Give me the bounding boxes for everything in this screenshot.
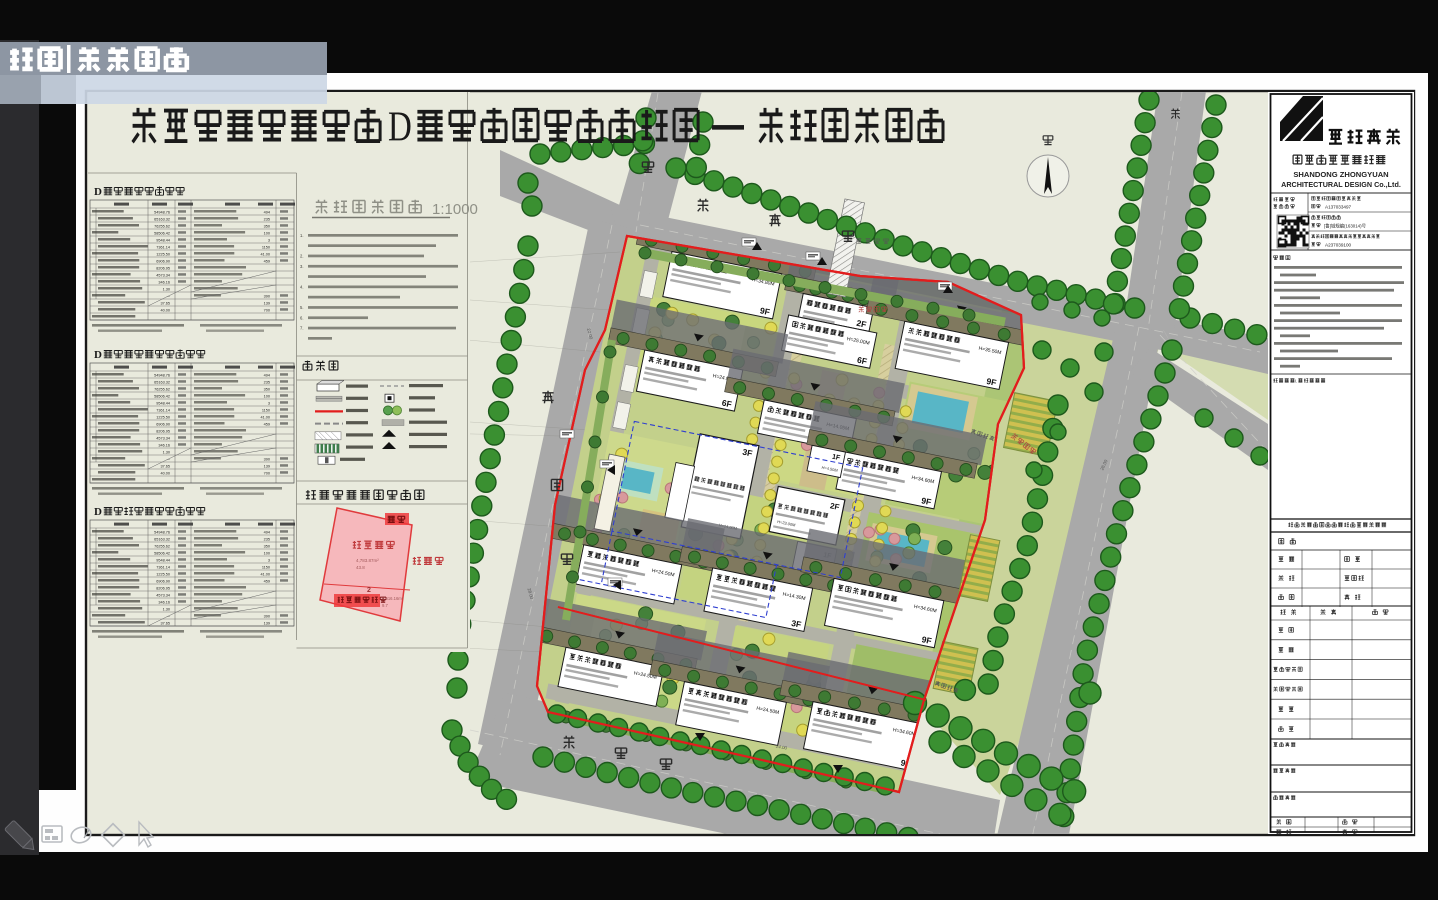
svg-text:4573.34: 4573.34 [156, 436, 170, 440]
svg-text:5.: 5. [300, 305, 304, 310]
svg-text:9F: 9F [921, 634, 933, 646]
svg-text:41.00: 41.00 [260, 252, 270, 256]
svg-text:235: 235 [264, 217, 270, 221]
svg-text:65163.32: 65163.32 [154, 217, 170, 221]
svg-text:459: 459 [264, 259, 270, 263]
svg-text:3: 3 [268, 558, 270, 562]
svg-text:346.16: 346.16 [158, 280, 170, 284]
svg-text:7361.14: 7361.14 [156, 565, 170, 569]
svg-text:346.16: 346.16 [158, 443, 170, 447]
svg-text:390: 390 [264, 614, 270, 618]
svg-text:346.16: 346.16 [158, 600, 170, 604]
svg-text:1.: 1. [300, 233, 304, 238]
svg-text:8206.95: 8206.95 [156, 586, 170, 590]
svg-text:139: 139 [264, 464, 270, 468]
svg-text:7.: 7. [300, 326, 304, 331]
svg-text:43.8: 43.8 [356, 565, 365, 570]
svg-text:3.: 3. [300, 264, 304, 269]
svg-text:41.00: 41.00 [260, 415, 270, 419]
svg-text:700: 700 [264, 471, 270, 475]
svg-text:1225.50: 1225.50 [156, 415, 170, 419]
svg-text:7361.14: 7361.14 [156, 408, 170, 412]
svg-text:76255.62: 76255.62 [154, 224, 170, 228]
svg-text:76255.62: 76255.62 [154, 544, 170, 548]
svg-text:[鲁]城规编(163014)号: [鲁]城规编(163014)号 [1324, 223, 1367, 230]
svg-text:6F: 6F [856, 355, 868, 367]
svg-text:6906.90: 6906.90 [156, 422, 170, 426]
svg-text:350: 350 [264, 224, 270, 228]
svg-text:9548.44: 9548.44 [156, 558, 170, 562]
svg-text:37.65: 37.65 [160, 621, 170, 625]
svg-text:459: 459 [264, 579, 270, 583]
svg-text:3: 3 [268, 238, 270, 242]
svg-text:A137033497: A137033497 [1325, 205, 1352, 210]
svg-text:139: 139 [264, 621, 270, 625]
svg-text:9548.44: 9548.44 [156, 238, 170, 242]
svg-text:3: 3 [268, 401, 270, 405]
svg-text:6906.90: 6906.90 [156, 259, 170, 263]
svg-text:390: 390 [264, 457, 270, 461]
svg-text:ARCHITECTURAL DESIGN Co.,Ltd.: ARCHITECTURAL DESIGN Co.,Ltd. [1281, 180, 1401, 189]
svg-text:54948.76: 54948.76 [154, 373, 170, 377]
svg-text:1.30: 1.30 [163, 607, 170, 611]
svg-text:54948.76: 54948.76 [154, 210, 170, 214]
svg-text:41.00: 41.00 [260, 572, 270, 576]
svg-text:6906.90: 6906.90 [156, 579, 170, 583]
svg-text:350: 350 [264, 387, 270, 391]
svg-text:D: D [94, 349, 102, 361]
svg-text:235: 235 [264, 537, 270, 541]
svg-text:1:1000: 1:1000 [432, 201, 478, 218]
svg-text:54948.76: 54948.76 [154, 530, 170, 534]
svg-text:494: 494 [264, 210, 270, 214]
svg-text:494: 494 [264, 530, 270, 534]
svg-text:D: D [94, 506, 102, 518]
svg-text:390: 390 [264, 294, 270, 298]
svg-text:65163.32: 65163.32 [154, 537, 170, 541]
svg-text:1225.50: 1225.50 [156, 572, 170, 576]
svg-text:58506.42: 58506.42 [154, 551, 170, 555]
svg-text:4.: 4. [300, 285, 304, 290]
svg-text:A237039100: A237039100 [1325, 243, 1352, 248]
svg-text:3F: 3F [742, 447, 754, 459]
svg-text:1150: 1150 [262, 565, 270, 569]
svg-text:9.7: 9.7 [382, 603, 388, 608]
svg-text:76255.62: 76255.62 [154, 387, 170, 391]
svg-text:D: D [388, 104, 412, 151]
svg-text:6F: 6F [721, 398, 733, 410]
svg-text:700: 700 [264, 308, 270, 312]
svg-text:494: 494 [264, 373, 270, 377]
svg-text:9F: 9F [920, 495, 932, 507]
svg-text:100: 100 [264, 394, 270, 398]
svg-text:100: 100 [264, 231, 270, 235]
svg-text:D: D [94, 186, 102, 198]
svg-text:65163.32: 65163.32 [154, 380, 170, 384]
svg-text:SHANDONG ZHONGYUAN: SHANDONG ZHONGYUAN [1293, 170, 1388, 179]
svg-text:2: 2 [367, 587, 371, 594]
svg-text:58506.42: 58506.42 [154, 394, 170, 398]
svg-text:37.65: 37.65 [160, 464, 170, 468]
svg-text:8206.95: 8206.95 [156, 266, 170, 270]
svg-text:40.00: 40.00 [160, 308, 170, 312]
svg-text:350: 350 [264, 544, 270, 548]
svg-text:9F: 9F [759, 305, 771, 317]
svg-text:139: 139 [264, 301, 270, 305]
svg-text:1150: 1150 [262, 245, 270, 249]
svg-text:9F: 9F [986, 376, 998, 388]
svg-text:58506.42: 58506.42 [154, 231, 170, 235]
svg-text:4,783.87m²: 4,783.87m² [356, 558, 379, 563]
svg-text:2F: 2F [829, 501, 840, 512]
svg-text:1.30: 1.30 [163, 287, 170, 291]
svg-text:4573.34: 4573.34 [156, 273, 170, 277]
svg-text:4573.34: 4573.34 [156, 593, 170, 597]
svg-text:235: 235 [264, 380, 270, 384]
svg-text:2.: 2. [300, 254, 304, 259]
svg-text:9548.44: 9548.44 [156, 401, 170, 405]
svg-text:6,616.16m²: 6,616.16m² [382, 596, 404, 601]
svg-text:40.00: 40.00 [160, 471, 170, 475]
svg-text:6.: 6. [300, 315, 304, 320]
svg-text:3F: 3F [790, 618, 802, 630]
svg-text:2F: 2F [856, 318, 868, 330]
svg-text:7361.14: 7361.14 [156, 245, 170, 249]
svg-text:1225.50: 1225.50 [156, 252, 170, 256]
svg-text:1.30: 1.30 [163, 450, 170, 454]
svg-text:1150: 1150 [262, 408, 270, 412]
svg-text:8206.95: 8206.95 [156, 429, 170, 433]
svg-text:100: 100 [264, 551, 270, 555]
svg-text:459: 459 [264, 422, 270, 426]
svg-text:37.65: 37.65 [160, 301, 170, 305]
